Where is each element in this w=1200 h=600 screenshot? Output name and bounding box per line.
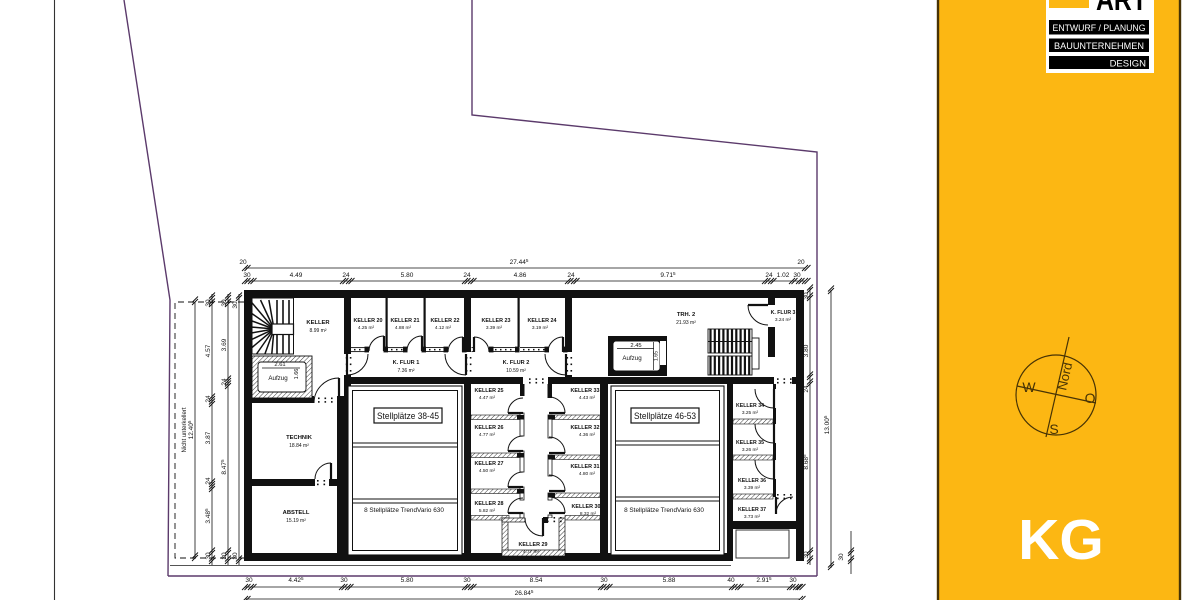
svg-text:4.77 m²: 4.77 m² (479, 432, 496, 438)
svg-text:4.36 m²: 4.36 m² (579, 432, 596, 438)
svg-text:10.59 m²: 10.59 m² (506, 368, 526, 374)
svg-text:2.61: 2.61 (274, 362, 285, 368)
svg-text:3.19 m²: 3.19 m² (532, 325, 549, 331)
svg-text:30: 30 (232, 552, 239, 560)
svg-text:4.50 m²: 4.50 m² (479, 468, 496, 474)
svg-text:4.25 m²: 4.25 m² (358, 325, 375, 331)
svg-text:30: 30 (789, 577, 797, 584)
svg-text:24: 24 (205, 395, 212, 403)
svg-text:KELLER 20: KELLER 20 (353, 318, 382, 324)
svg-text:8 Stellplätze TrendVario 630: 8 Stellplätze TrendVario 630 (364, 507, 444, 514)
svg-text:KELLER 29: KELLER 29 (518, 542, 547, 548)
svg-text:24: 24 (463, 272, 471, 279)
svg-text:KELLER 31: KELLER 31 (570, 464, 599, 470)
svg-text:1.66: 1.66 (294, 369, 300, 380)
svg-text:3.26 m²: 3.26 m² (742, 447, 759, 453)
svg-text:3.87: 3.87 (205, 431, 212, 444)
svg-text:KELLER 30: KELLER 30 (571, 504, 600, 510)
svg-text:KELLER 35: KELLER 35 (736, 440, 764, 446)
svg-text:4.80 m²: 4.80 m² (579, 471, 596, 477)
svg-text:8.99 m²: 8.99 m² (310, 328, 327, 334)
svg-text:KELLER 26: KELLER 26 (474, 425, 503, 431)
svg-text:4.57: 4.57 (205, 344, 212, 357)
svg-text:KELLER 23: KELLER 23 (481, 318, 510, 324)
svg-text:40: 40 (727, 577, 735, 584)
svg-text:5.88: 5.88 (663, 577, 676, 584)
svg-text:KELLER 28: KELLER 28 (474, 501, 503, 507)
svg-text:18.84 m²: 18.84 m² (289, 443, 309, 449)
svg-text:5.82 m²: 5.82 m² (479, 508, 496, 514)
svg-text:5.80: 5.80 (401, 272, 414, 279)
svg-text:4.77 m²: 4.77 m² (523, 549, 540, 555)
svg-text:Aufzug: Aufzug (268, 375, 288, 382)
svg-text:30: 30 (245, 577, 253, 584)
svg-text:TECHNIK: TECHNIK (286, 435, 313, 441)
svg-text:30: 30 (221, 299, 228, 307)
svg-text:24: 24 (803, 385, 810, 393)
svg-text:30: 30 (793, 272, 801, 279)
svg-text:30: 30 (838, 553, 845, 561)
svg-text:TRH. 2: TRH. 2 (677, 312, 695, 318)
svg-text:4.86: 4.86 (514, 272, 527, 279)
svg-text:5.80: 5.80 (401, 577, 414, 584)
svg-text:KELLER 37: KELLER 37 (738, 507, 766, 513)
svg-text:Aufzug: Aufzug (622, 355, 642, 362)
svg-text:30: 30 (463, 577, 471, 584)
svg-text:24: 24 (221, 378, 228, 386)
svg-text:20: 20 (239, 259, 247, 266)
svg-text:30: 30 (232, 301, 239, 309)
svg-text:KG: KG (1018, 508, 1104, 572)
svg-text:BAUUNTERNEHMEN: BAUUNTERNEHMEN (1054, 41, 1144, 52)
svg-text:KELLER 33: KELLER 33 (570, 388, 599, 394)
svg-text:ENTWURF / PLANUNG: ENTWURF / PLANUNG (1053, 23, 1146, 34)
svg-text:Stellplätze 46-53: Stellplätze 46-53 (634, 411, 696, 422)
svg-text:3.39 m²: 3.39 m² (486, 325, 503, 331)
svg-text:4.47 m²: 4.47 m² (479, 395, 496, 401)
svg-text:3.39 m²: 3.39 m² (744, 485, 761, 491)
svg-text:KELLER 25: KELLER 25 (474, 388, 503, 394)
svg-text:Stellplätze 38-45: Stellplätze 38-45 (377, 411, 439, 422)
svg-text:KELLER 24: KELLER 24 (527, 318, 556, 324)
svg-text:KELLER 27: KELLER 27 (474, 461, 503, 467)
svg-text:S: S (1049, 421, 1058, 437)
svg-text:30: 30 (221, 552, 228, 560)
svg-text:30: 30 (600, 577, 608, 584)
svg-text:20: 20 (797, 259, 805, 266)
svg-text:3.69: 3.69 (221, 338, 228, 351)
svg-text:8 Stellplätze TrendVario 630: 8 Stellplätze TrendVario 630 (624, 507, 704, 514)
svg-text:15.19 m²: 15.19 m² (286, 518, 306, 524)
svg-text:24: 24 (567, 272, 575, 279)
svg-text:24: 24 (342, 272, 350, 279)
svg-text:KELLER 36: KELLER 36 (738, 478, 766, 484)
svg-text:ART: ART (1096, 0, 1147, 17)
svg-text:3.24 m²: 3.24 m² (775, 317, 792, 323)
svg-text:KELLER 21: KELLER 21 (390, 318, 419, 324)
svg-text:O: O (1085, 390, 1096, 406)
svg-text:8.54: 8.54 (530, 577, 543, 584)
svg-text:30: 30 (205, 552, 212, 560)
svg-text:1.65: 1.65 (654, 351, 660, 361)
svg-text:4.88 m²: 4.88 m² (395, 325, 412, 331)
svg-text:K. FLUR 1: K. FLUR 1 (393, 360, 420, 366)
svg-text:K. FLUR 3: K. FLUR 3 (771, 310, 796, 316)
svg-text:3.73 m²: 3.73 m² (744, 514, 761, 520)
svg-text:W: W (1022, 379, 1036, 395)
svg-text:2.45: 2.45 (630, 343, 641, 349)
svg-text:3.25 m²: 3.25 m² (742, 410, 759, 416)
svg-text:1.02: 1.02 (777, 272, 790, 279)
svg-text:4.49: 4.49 (290, 272, 303, 279)
svg-text:ABSTELL: ABSTELL (283, 510, 310, 516)
svg-text:KELLER 34: KELLER 34 (736, 403, 764, 409)
svg-text:30: 30 (205, 299, 212, 307)
svg-text:KELLER 22: KELLER 22 (430, 318, 459, 324)
svg-text:24: 24 (205, 477, 212, 485)
svg-text:30: 30 (243, 272, 251, 279)
svg-text:DESIGN: DESIGN (1110, 59, 1147, 70)
svg-text:30: 30 (340, 577, 348, 584)
svg-text:KELLER: KELLER (306, 320, 330, 326)
svg-text:21.93 m²: 21.93 m² (676, 320, 696, 326)
svg-text:4.12 m²: 4.12 m² (435, 325, 452, 331)
svg-text:KELLER 32: KELLER 32 (570, 425, 599, 431)
svg-text:30: 30 (803, 292, 810, 300)
svg-text:4.43 m²: 4.43 m² (579, 395, 596, 401)
svg-text:K. FLUR 2: K. FLUR 2 (503, 360, 530, 366)
svg-text:3.80: 3.80 (803, 344, 810, 357)
svg-text:7.36 m²: 7.36 m² (398, 368, 415, 374)
svg-text:24: 24 (765, 272, 773, 279)
svg-text:30: 30 (803, 551, 810, 559)
